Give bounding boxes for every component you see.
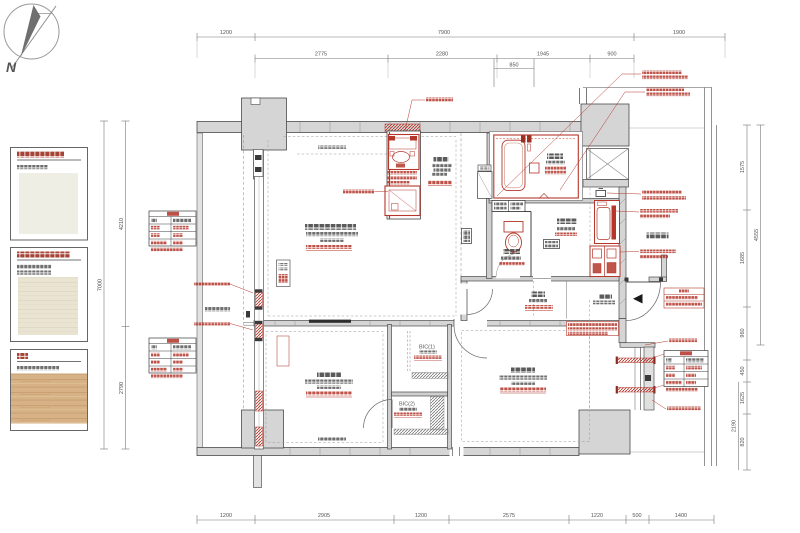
svg-text:7900: 7900 (438, 30, 450, 36)
svg-text:N: N (6, 59, 17, 75)
svg-text:1400: 1400 (675, 513, 687, 519)
svg-text:4555: 4555 (754, 229, 760, 241)
svg-text:850: 850 (509, 63, 518, 69)
svg-text:820: 820 (740, 437, 746, 446)
svg-text:1900: 1900 (673, 30, 685, 36)
svg-text:1625: 1625 (740, 392, 746, 404)
svg-text:2575: 2575 (503, 513, 515, 519)
svg-text:2905: 2905 (318, 513, 330, 519)
svg-text:4210: 4210 (119, 218, 125, 230)
svg-text:1200: 1200 (220, 513, 232, 519)
svg-text:2190: 2190 (732, 420, 738, 432)
svg-text:1945: 1945 (537, 52, 549, 58)
svg-text:1200: 1200 (220, 30, 232, 36)
svg-text:960: 960 (740, 328, 746, 337)
svg-text:BIC(1): BIC(1) (419, 345, 435, 351)
svg-text:1685: 1685 (740, 252, 746, 264)
svg-text:2775: 2775 (315, 52, 327, 58)
svg-text:450: 450 (740, 366, 746, 375)
svg-text:2790: 2790 (119, 382, 125, 394)
svg-text:900: 900 (607, 52, 616, 58)
svg-text:500: 500 (632, 513, 641, 519)
svg-text:2280: 2280 (436, 52, 448, 58)
svg-text:BIC(2): BIC(2) (399, 402, 415, 408)
svg-text:7000: 7000 (98, 279, 104, 291)
svg-text:1575: 1575 (740, 161, 746, 173)
svg-text:1220: 1220 (591, 513, 603, 519)
svg-text:1200: 1200 (415, 513, 427, 519)
